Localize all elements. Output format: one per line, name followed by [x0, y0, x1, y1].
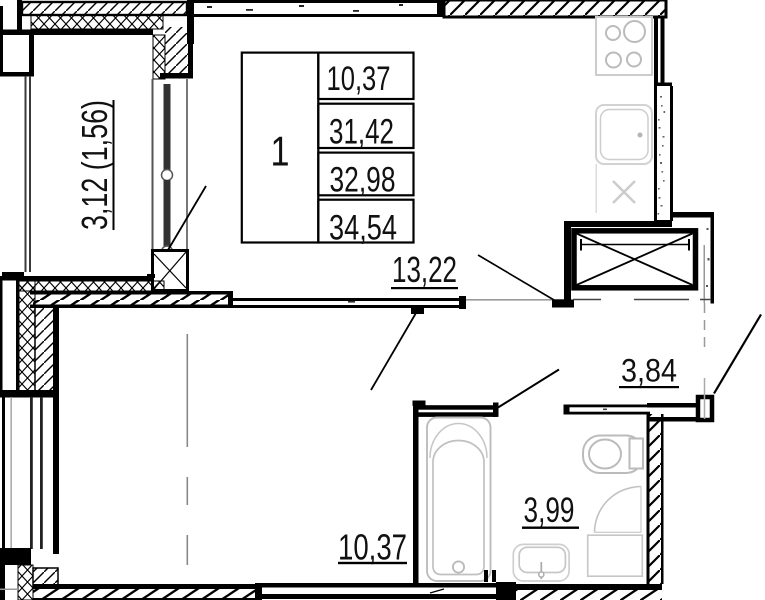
svg-text:10,37: 10,37 [338, 527, 407, 568]
svg-text:13,22: 13,22 [392, 249, 457, 290]
svg-text:1: 1 [271, 128, 290, 175]
svg-text:3,12 (1,56): 3,12 (1,56) [74, 100, 115, 230]
svg-text:32,98: 32,98 [330, 161, 396, 200]
svg-text:34,54: 34,54 [329, 209, 397, 248]
svg-text:3,99: 3,99 [524, 491, 575, 530]
svg-text:3,84: 3,84 [621, 353, 677, 389]
svg-text:31,42: 31,42 [329, 113, 394, 152]
svg-text:10,37: 10,37 [327, 60, 391, 98]
